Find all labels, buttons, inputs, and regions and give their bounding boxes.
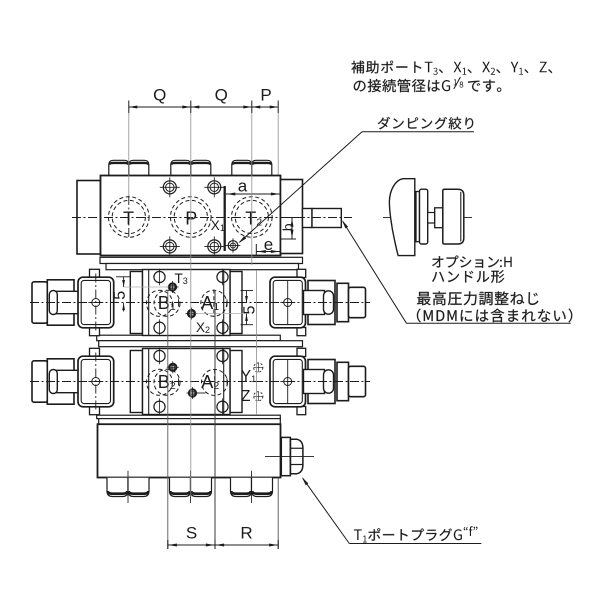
svg-text:e: e	[264, 235, 273, 254]
svg-text:R: R	[240, 524, 252, 543]
svg-text:a: a	[238, 176, 248, 195]
svg-text:P: P	[185, 209, 197, 229]
svg-text:P: P	[260, 86, 271, 105]
svg-text:Q: Q	[215, 86, 228, 105]
svg-text:S: S	[186, 524, 197, 543]
svg-text:Z: Z	[241, 388, 250, 405]
svg-text:Q: Q	[153, 86, 166, 105]
svg-text:T: T	[123, 209, 134, 229]
